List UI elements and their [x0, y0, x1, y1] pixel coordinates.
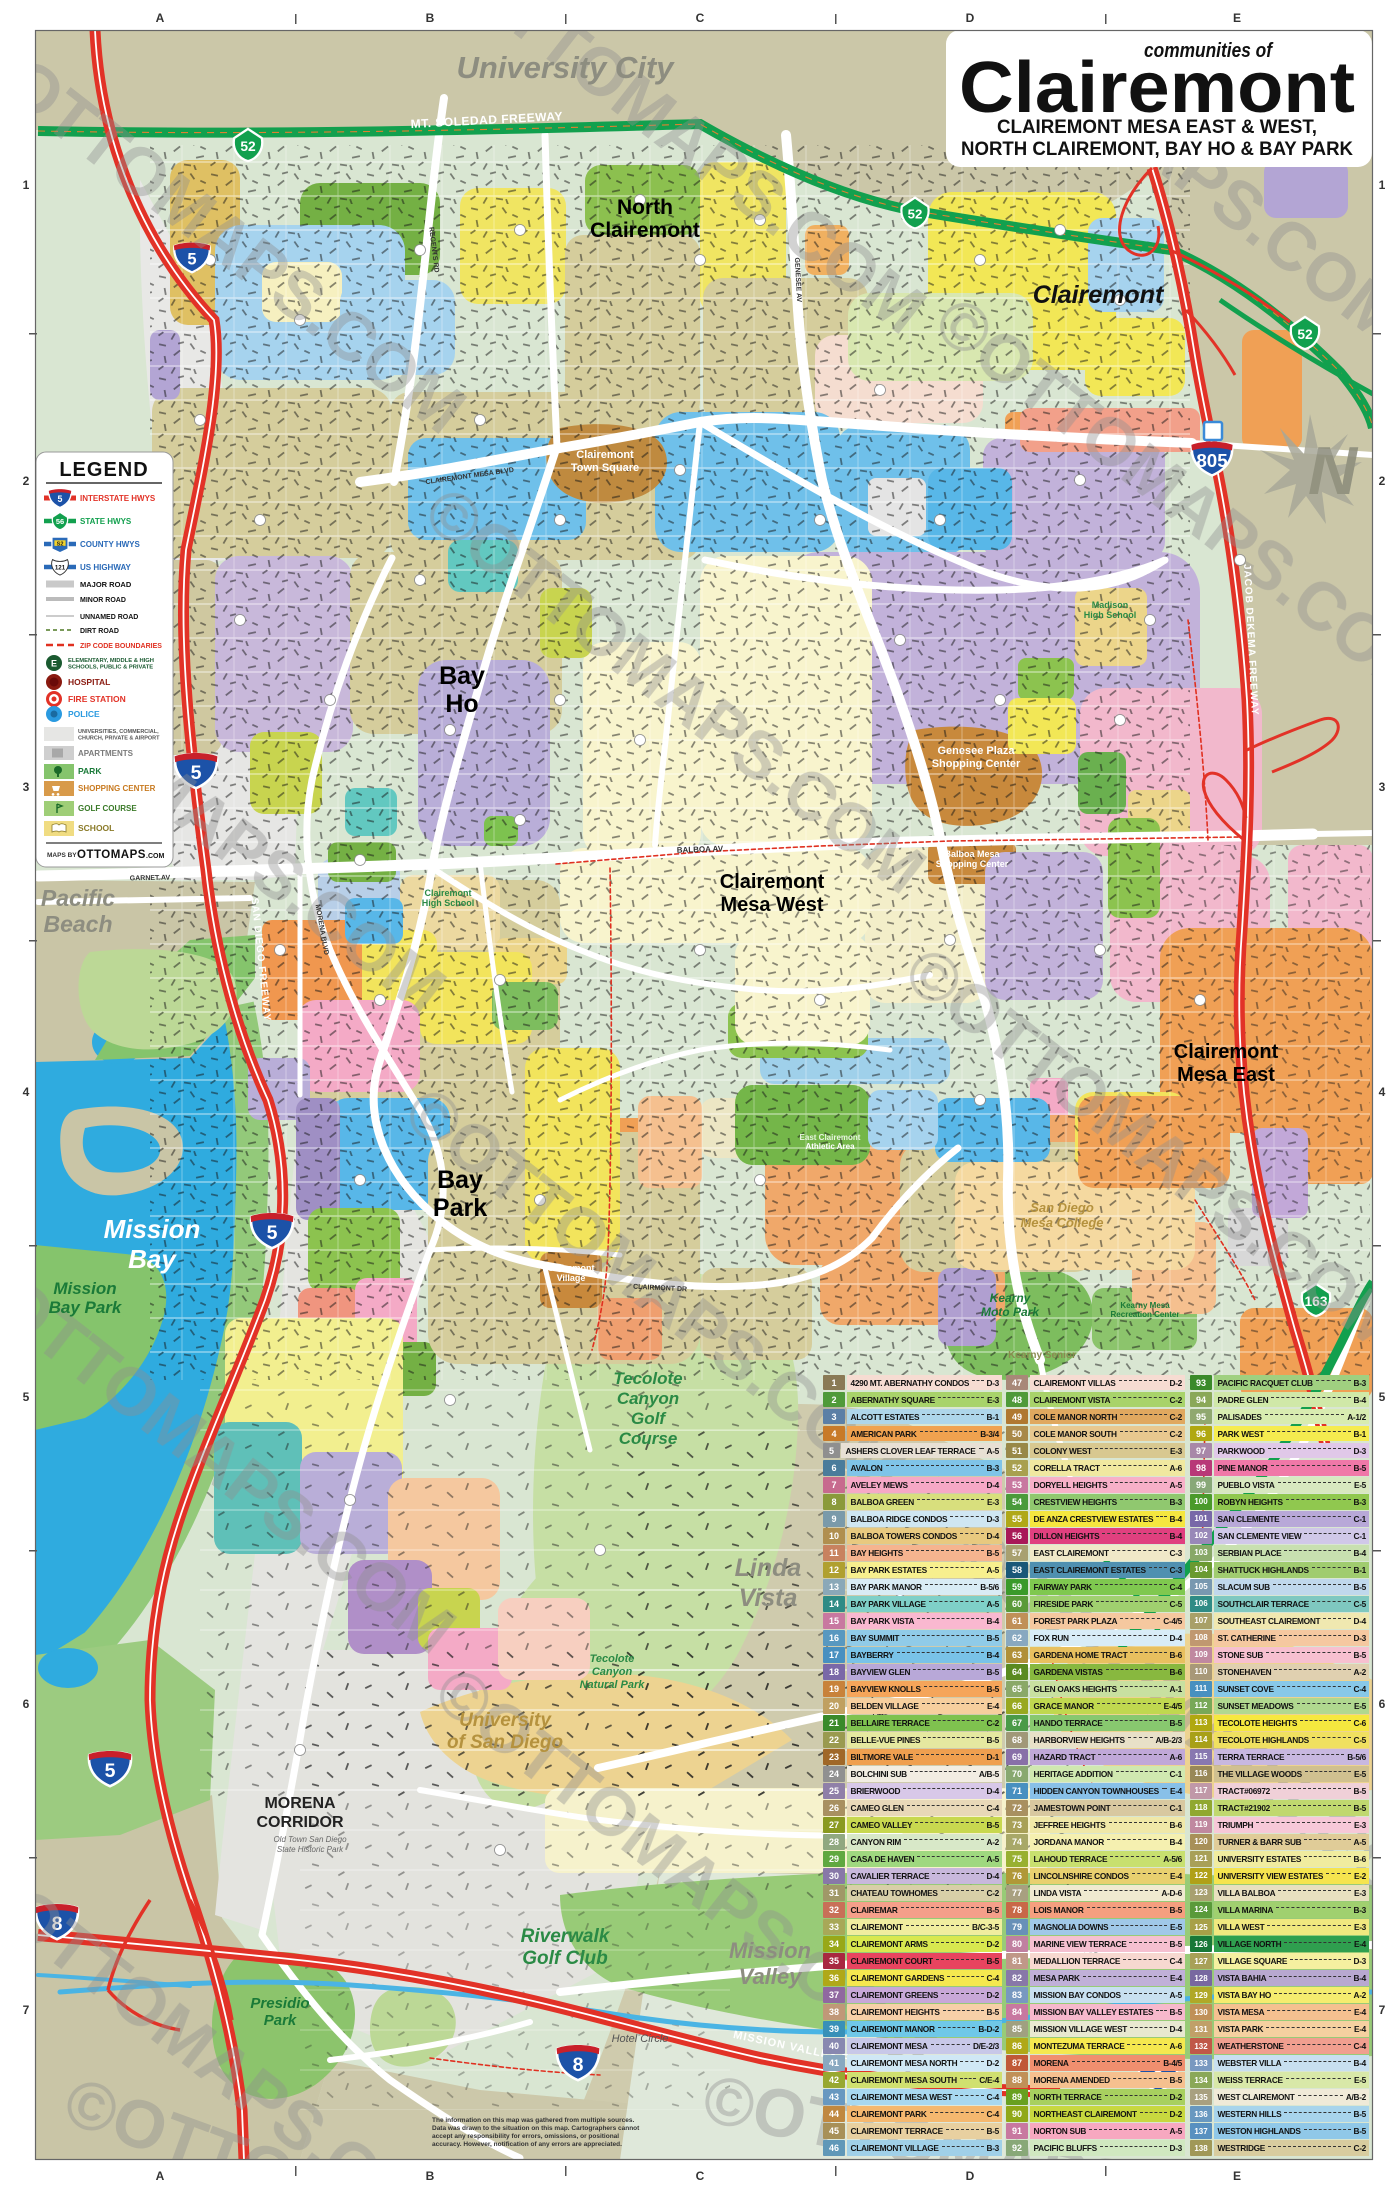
svg-text:B: B	[426, 11, 435, 25]
svg-text:Village: Village	[557, 1273, 586, 1283]
svg-text:Bay: Bay	[439, 662, 485, 690]
svg-text:Park: Park	[264, 2012, 297, 2029]
svg-text:Valley: Valley	[739, 1964, 804, 1989]
svg-text:POLICE: POLICE	[68, 709, 100, 719]
svg-text:Mesa West: Mesa West	[720, 894, 823, 916]
svg-text:Hotel Circle: Hotel Circle	[612, 2033, 669, 2045]
svg-text:Canyon: Canyon	[617, 1389, 679, 1408]
svg-text:Town Square: Town Square	[571, 462, 639, 474]
svg-text:Linda: Linda	[735, 1554, 802, 1582]
svg-text:STATE HWYS: STATE HWYS	[80, 517, 132, 526]
svg-text:E: E	[51, 659, 57, 669]
svg-text:UNIVERSITIES, COMMERCIAL,: UNIVERSITIES, COMMERCIAL,	[78, 729, 159, 735]
svg-text:Clairemont: Clairemont	[720, 871, 825, 893]
svg-text:Data was drawn to the situatio: Data was drawn to the situation on this …	[432, 2125, 640, 2132]
svg-text:Clairemont: Clairemont	[1174, 1041, 1279, 1063]
svg-text:Kearny Mesa: Kearny Mesa	[1120, 1301, 1170, 1310]
svg-text:E: E	[1233, 2169, 1241, 2183]
svg-text:GARNET AV: GARNET AV	[130, 875, 171, 883]
svg-text:Tecolote: Tecolote	[613, 1369, 682, 1388]
svg-text:3: 3	[1379, 780, 1386, 794]
svg-text:GOLF COURSE: GOLF COURSE	[78, 804, 137, 813]
svg-text:Bay: Bay	[128, 1244, 177, 1274]
svg-text:Riverwalk: Riverwalk	[521, 1926, 611, 1947]
svg-text:Bay: Bay	[437, 1166, 483, 1194]
svg-text:North: North	[617, 196, 673, 219]
svg-text:Balboa Mesa: Balboa Mesa	[944, 849, 1000, 859]
svg-text:Madison: Madison	[1092, 600, 1129, 610]
svg-text:accept any responsibility for: accept any responsibility for errors, om…	[432, 2133, 619, 2140]
svg-text:SHOPPING CENTER: SHOPPING CENTER	[78, 784, 156, 793]
svg-text:High School: High School	[422, 898, 475, 908]
svg-text:Kearny Senior: Kearny Senior	[1008, 1350, 1076, 1361]
svg-text:2: 2	[23, 474, 30, 488]
svg-text:Mesa College: Mesa College	[1020, 1215, 1103, 1230]
svg-text:SCHOOLS, PUBLIC & PRIVATE: SCHOOLS, PUBLIC & PRIVATE	[68, 665, 153, 671]
svg-text:A: A	[156, 2169, 165, 2183]
svg-text:APARTMENTS: APARTMENTS	[78, 749, 134, 758]
svg-text:MAJOR ROAD: MAJOR ROAD	[80, 580, 132, 589]
svg-text:52: 52	[240, 139, 256, 154]
svg-text:Clairemont: Clairemont	[590, 219, 700, 242]
svg-text:Old Town San Diego: Old Town San Diego	[273, 1835, 347, 1844]
svg-text:5: 5	[267, 1222, 278, 1244]
svg-text:ELEMENTARY, MIDDLE & HIGH: ELEMENTARY, MIDDLE & HIGH	[68, 658, 154, 664]
svg-text:Mission: Mission	[53, 1279, 116, 1298]
svg-text:Clairemont: Clairemont	[424, 888, 471, 898]
svg-text:3: 3	[23, 780, 30, 794]
svg-text:Ho: Ho	[445, 690, 478, 718]
svg-text:5: 5	[23, 1390, 30, 1404]
svg-text:7: 7	[1379, 2003, 1386, 2017]
svg-text:INTERSTATE HWYS: INTERSTATE HWYS	[80, 494, 156, 503]
svg-text:FIRE STATION: FIRE STATION	[68, 694, 126, 704]
svg-text:State Historic Park: State Historic Park	[277, 1845, 344, 1854]
svg-text:Presidio: Presidio	[250, 1995, 309, 2012]
svg-text:COUNTY HWYS: COUNTY HWYS	[80, 540, 141, 549]
svg-text:San Diego: San Diego	[1030, 1200, 1094, 1215]
svg-text:4: 4	[1379, 1085, 1386, 1099]
svg-text:Canyon: Canyon	[592, 1666, 633, 1678]
svg-text:N: N	[1308, 433, 1359, 509]
svg-text:8: 8	[573, 2054, 584, 2076]
svg-text:MINOR ROAD: MINOR ROAD	[80, 597, 126, 604]
svg-text:1: 1	[23, 178, 30, 192]
svg-text:Mesa East: Mesa East	[1177, 1064, 1275, 1086]
svg-text:D: D	[966, 2169, 975, 2183]
svg-text:SCHOOL: SCHOOL	[78, 823, 114, 833]
svg-text:Clairemont: Clairemont	[547, 1263, 594, 1273]
svg-text:High School: High School	[1084, 610, 1137, 620]
svg-text:accuracy. However, notificatio: accuracy. However, notification of any e…	[432, 2141, 622, 2148]
svg-text:LEGEND: LEGEND	[59, 459, 148, 481]
svg-text:ZIP CODE BOUNDARIES: ZIP CODE BOUNDARIES	[80, 643, 162, 650]
svg-text:Course: Course	[619, 1429, 678, 1448]
svg-text:6: 6	[23, 1697, 30, 1711]
svg-text:C: C	[696, 11, 705, 25]
svg-text:US HIGHWAY: US HIGHWAY	[80, 563, 131, 572]
svg-text:East Clairemont: East Clairemont	[800, 1133, 861, 1142]
svg-text:2: 2	[1379, 474, 1386, 488]
svg-text:Natural Park: Natural Park	[580, 1679, 646, 1691]
svg-text:B: B	[426, 2169, 435, 2183]
svg-text:HOSPITAL: HOSPITAL	[68, 677, 110, 687]
svg-text:1: 1	[1379, 178, 1386, 192]
svg-text:5: 5	[58, 494, 63, 504]
svg-text:Shopping Center: Shopping Center	[936, 859, 1009, 869]
svg-text:Clairemont: Clairemont	[576, 449, 634, 461]
svg-text:Genesee Plaza: Genesee Plaza	[937, 745, 1015, 757]
svg-text:Mission: Mission	[104, 1214, 201, 1244]
svg-text:.COM: .COM	[146, 853, 164, 860]
svg-text:D: D	[966, 11, 975, 25]
svg-text:4: 4	[23, 1085, 30, 1099]
svg-text:NORTH CLAIREMONT, BAY HO & BAY: NORTH CLAIREMONT, BAY HO & BAY PARK	[961, 139, 1353, 160]
svg-text:OTTOMAPS: OTTOMAPS	[77, 849, 146, 861]
svg-text:MAPS BY: MAPS BY	[47, 852, 77, 859]
svg-text:S2: S2	[57, 541, 64, 547]
svg-text:7: 7	[23, 2003, 30, 2017]
svg-text:Clairemont: Clairemont	[959, 48, 1355, 128]
svg-text:Golf Club: Golf Club	[522, 1948, 608, 1969]
svg-text:52: 52	[1297, 327, 1313, 342]
svg-text:of San Diego: of San Diego	[447, 1732, 563, 1753]
svg-text:Tecolote: Tecolote	[590, 1653, 635, 1665]
svg-text:MORENA: MORENA	[264, 1795, 336, 1812]
svg-text:Shopping Center: Shopping Center	[932, 758, 1021, 770]
svg-text:6: 6	[1379, 1697, 1386, 1711]
svg-text:5: 5	[105, 1760, 116, 1782]
svg-text:C: C	[696, 2169, 705, 2183]
svg-text:CORRIDOR: CORRIDOR	[256, 1814, 344, 1831]
svg-text:PARK: PARK	[78, 766, 102, 776]
svg-text:BALBOA AV: BALBOA AV	[677, 844, 724, 855]
svg-text:The information on this map wa: The information on this map was gathered…	[432, 2117, 634, 2124]
svg-text:5: 5	[1379, 1390, 1386, 1404]
svg-text:Clairemont: Clairemont	[1033, 281, 1165, 309]
svg-text:CHURCH, PRIVATE & AIRPORT: CHURCH, PRIVATE & AIRPORT	[78, 736, 160, 742]
svg-text:Beach: Beach	[43, 911, 112, 937]
svg-text:121: 121	[55, 564, 66, 571]
svg-text:DIRT ROAD: DIRT ROAD	[80, 628, 119, 635]
svg-text:56: 56	[56, 517, 64, 526]
svg-text:Recreation Center: Recreation Center	[1111, 1310, 1180, 1319]
svg-text:52: 52	[908, 207, 923, 222]
svg-text:CLAIREMONT MESA EAST & WEST,: CLAIREMONT MESA EAST & WEST,	[997, 117, 1317, 138]
svg-text:Vista: Vista	[739, 1584, 798, 1612]
svg-text:Mission: Mission	[729, 1938, 811, 1963]
svg-text:E: E	[1233, 11, 1241, 25]
svg-text:Athletic Area: Athletic Area	[805, 1142, 855, 1151]
svg-text:Bay Park: Bay Park	[49, 1298, 123, 1317]
svg-text:Golf: Golf	[631, 1409, 667, 1428]
svg-text:University City: University City	[456, 50, 675, 85]
svg-text:Pacific: Pacific	[41, 885, 115, 911]
svg-text:Moto Park: Moto Park	[981, 1305, 1040, 1319]
svg-text:UNNAMED ROAD: UNNAMED ROAD	[80, 614, 138, 621]
svg-text:A: A	[156, 11, 165, 25]
svg-text:Kearny: Kearny	[990, 1291, 1032, 1305]
svg-text:Park: Park	[433, 1194, 487, 1222]
svg-text:University: University	[459, 1710, 552, 1731]
